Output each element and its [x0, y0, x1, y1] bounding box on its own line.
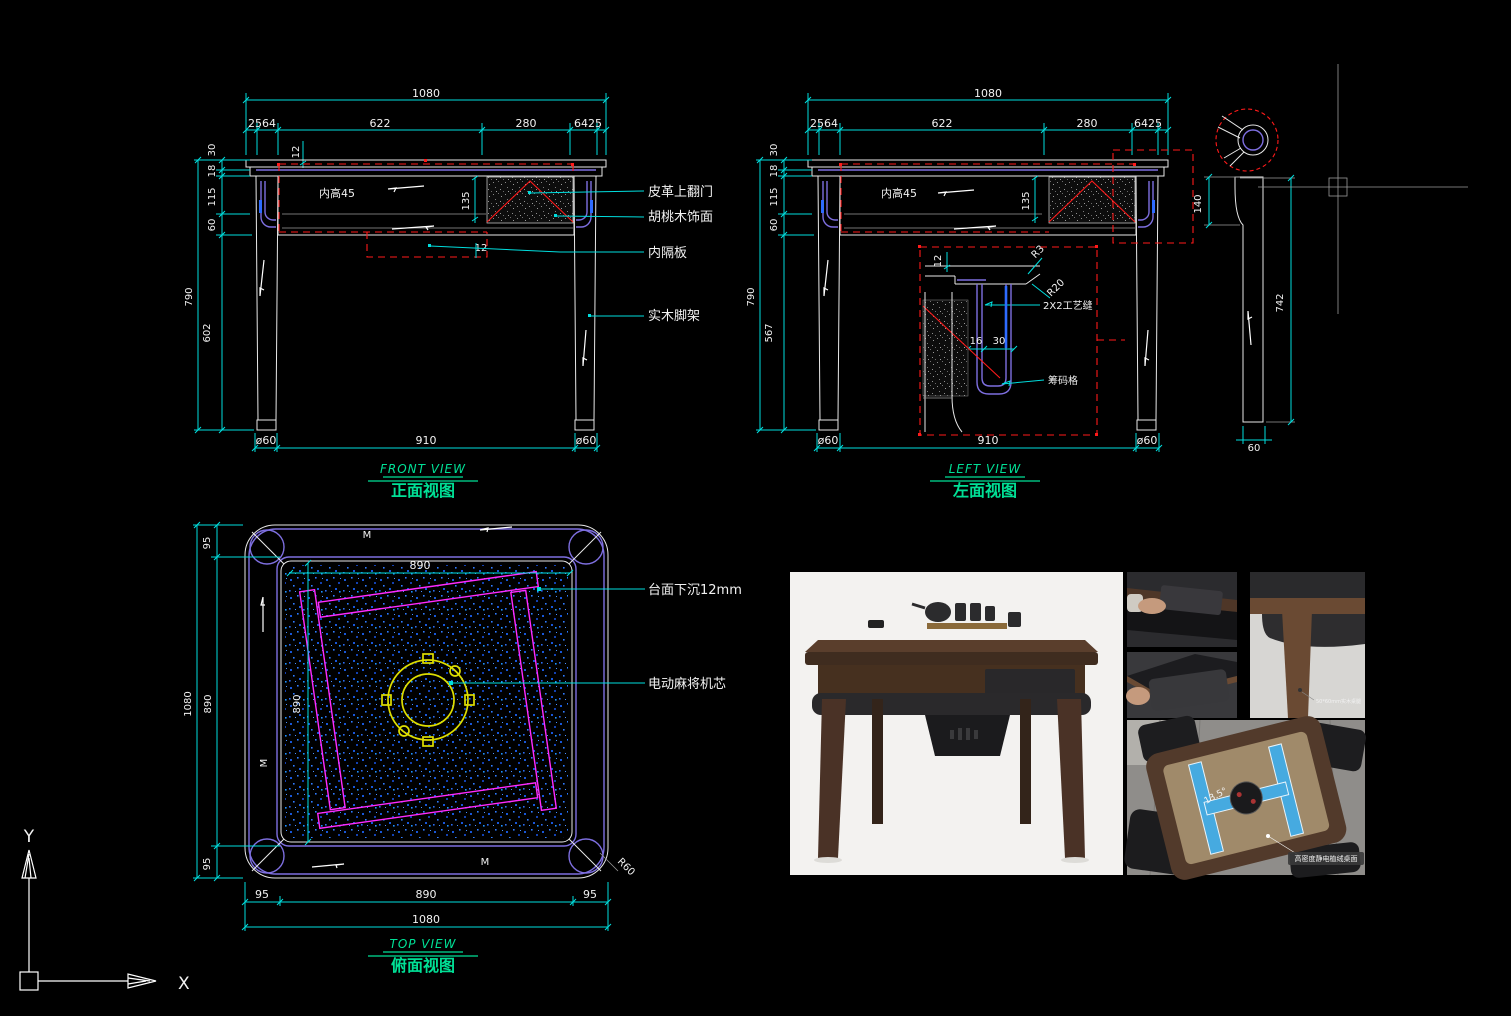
- photo-surface-note: 高密度静电植绒桌面: [1295, 854, 1358, 863]
- ucs-x-label: X: [178, 974, 190, 994]
- dim-total-height: 790: [184, 287, 195, 306]
- dim-stack: 30: [207, 144, 218, 157]
- dim-total: 1080: [183, 691, 194, 716]
- dim-seg: 622: [932, 117, 953, 130]
- dim-seg: 6425: [574, 117, 602, 130]
- view-title-cn: 俯面视图: [391, 956, 455, 975]
- dim-leg-height: 567: [764, 323, 775, 342]
- dim-total: 1080: [412, 913, 440, 926]
- leg-dim-742: 742: [1275, 293, 1286, 312]
- grain-mark: M: [259, 759, 270, 768]
- leg-dim-60: 60: [1248, 443, 1261, 454]
- note-inner-height: 内高45: [319, 186, 355, 200]
- ucs-y-label: Y: [23, 827, 35, 847]
- grain-mark: M: [363, 530, 372, 541]
- dim-stack: 60: [769, 219, 780, 232]
- dim-stack: 115: [207, 187, 218, 206]
- dim-seg: 2564: [810, 117, 838, 130]
- dim-seg: 6425: [1134, 117, 1162, 130]
- photo-leg-note: 50*60mm实木桌腿: [1316, 698, 1361, 705]
- dim-seg: 2564: [248, 117, 276, 130]
- dim-stack: 60: [207, 219, 218, 232]
- dim-inner: 890: [416, 888, 437, 901]
- view-title-en: TOP VIEW: [389, 937, 456, 951]
- dim-seg: 622: [370, 117, 391, 130]
- view-title-cn: 左面视图: [952, 481, 1017, 500]
- dim-leg-dia: ø60: [818, 434, 839, 447]
- cad-canvas: 1080 2564 622 280 6425 12: [0, 0, 1511, 1016]
- dim-leg-dia: ø60: [576, 434, 597, 447]
- callout-inner-panel: 内隔板: [648, 245, 687, 261]
- detail-seam-label: 2X2工艺缝: [1043, 299, 1093, 312]
- dim-inner-890: 890: [410, 559, 431, 572]
- dim-margin: 95: [583, 888, 597, 901]
- dim-leg-dia: ø60: [256, 434, 277, 447]
- callout-walnut-veneer: 胡桃木饰面: [648, 210, 713, 225]
- view-title-en: FRONT VIEW: [380, 462, 466, 476]
- detail-dim-12: 12: [933, 255, 944, 268]
- detail-slot-label: 筹码格: [1048, 374, 1078, 387]
- photo-flip-door: [1127, 572, 1237, 647]
- dim-total-width: 1080: [412, 87, 440, 100]
- detail-dim-16: 16: [970, 336, 983, 347]
- photo-leg-closeup: 50*60mm实木桌腿: [1250, 572, 1365, 718]
- dim-seg: 280: [1077, 117, 1098, 130]
- dim-total-height: 790: [746, 287, 757, 306]
- callout-leather-door: 皮革上翻门: [648, 185, 713, 200]
- dim-margin: 95: [202, 537, 213, 550]
- grain-mark: M: [481, 857, 490, 868]
- dim-margin: 95: [202, 858, 213, 871]
- dim-inner: 890: [203, 694, 214, 713]
- dim-leg-span: 910: [978, 434, 999, 447]
- dim-leg-span: 910: [416, 434, 437, 447]
- photo-tabletop-overhead: 13.5° 高密度静电植绒桌面: [1123, 713, 1367, 883]
- dim-stack: 115: [769, 187, 780, 206]
- callout-sunken-top: 台面下沉12mm: [648, 583, 742, 598]
- dim-stack: 30: [769, 144, 780, 157]
- dim-stack: 18: [769, 165, 780, 178]
- photo-main: [790, 572, 1123, 875]
- view-title-en: LEFT VIEW: [949, 462, 1022, 476]
- leg-dim-140: 140: [1193, 194, 1204, 213]
- dim-door-height: 135: [1021, 191, 1032, 210]
- dim-margin: 95: [255, 888, 269, 901]
- dim-inner-890: 890: [292, 694, 303, 713]
- callout-machine-core: 电动麻将机芯: [648, 677, 726, 692]
- note-inner-height: 内高45: [881, 186, 917, 200]
- dim-seg: 280: [516, 117, 537, 130]
- dim-total-width: 1080: [974, 87, 1002, 100]
- callout-wood-legs: 实木脚架: [648, 308, 700, 324]
- dim-top-offset: 12: [291, 146, 302, 159]
- dim-door-height: 135: [461, 191, 472, 210]
- dim-leg-height: 602: [202, 323, 213, 342]
- detail-dim-30: 30: [993, 336, 1006, 347]
- photo-drawer: [1126, 652, 1237, 718]
- view-title-cn: 正面视图: [391, 481, 455, 500]
- dim-leg-dia: ø60: [1137, 434, 1158, 447]
- dim-stack: 18: [207, 165, 218, 178]
